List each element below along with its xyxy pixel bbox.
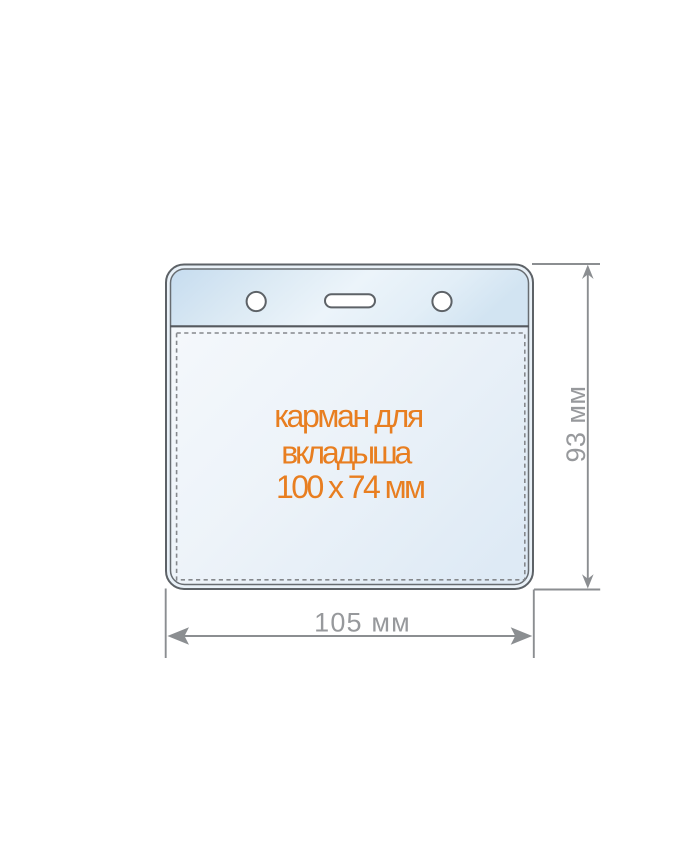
svg-text:100 х 74 мм: 100 х 74 мм <box>276 469 426 505</box>
svg-text:105 мм: 105 мм <box>314 608 410 638</box>
svg-text:вкладыша: вкладыша <box>281 435 412 471</box>
svg-text:карман для: карман для <box>274 398 424 434</box>
svg-text:93 мм: 93 мм <box>561 386 591 463</box>
